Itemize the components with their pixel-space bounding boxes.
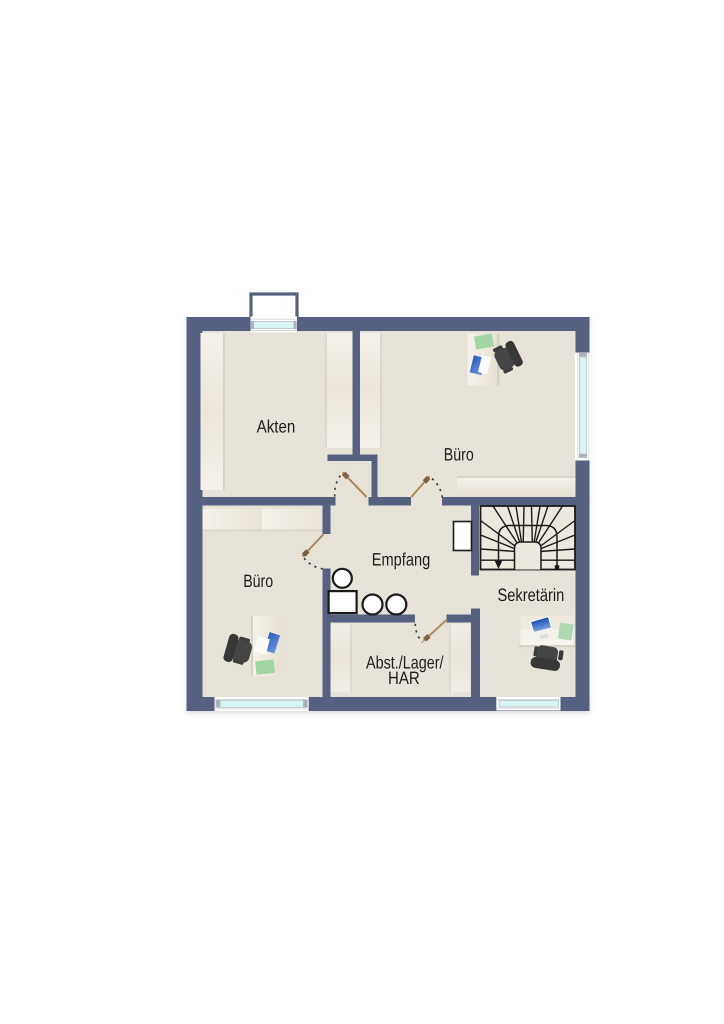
svg-text:Büro: Büro xyxy=(243,571,273,591)
svg-text:Büro: Büro xyxy=(444,444,474,464)
svg-text:HAR: HAR xyxy=(388,668,420,688)
svg-text:Akten: Akten xyxy=(257,416,296,436)
svg-text:Empfang: Empfang xyxy=(372,550,430,570)
svg-text:Sekretärin: Sekretärin xyxy=(498,585,565,605)
